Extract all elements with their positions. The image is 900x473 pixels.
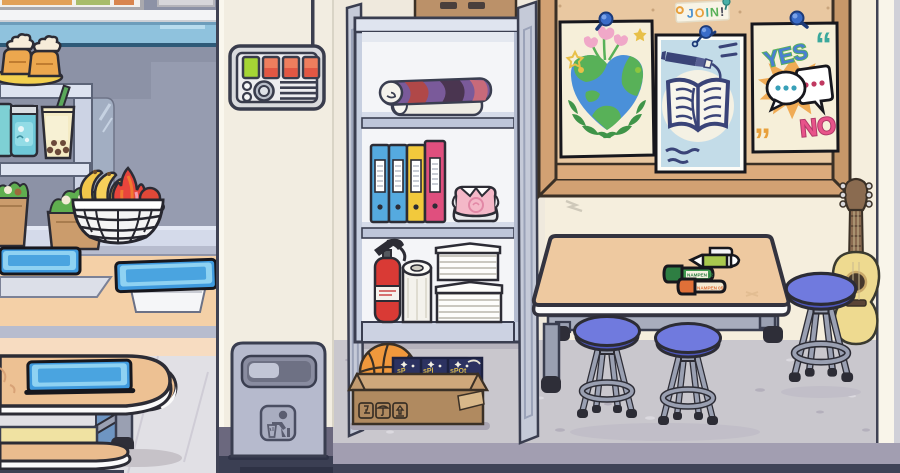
svg-text:”: ” [754, 122, 771, 160]
svg-text:NAMPEN 12: NAMPEN 12 [687, 273, 714, 278]
svg-text:“: “ [815, 26, 832, 64]
svg-text:NO: NO [799, 112, 838, 143]
svg-text:NAMPEN 05: NAMPEN 05 [697, 286, 724, 291]
svg-text:JOIN!: JOIN! [686, 5, 725, 21]
